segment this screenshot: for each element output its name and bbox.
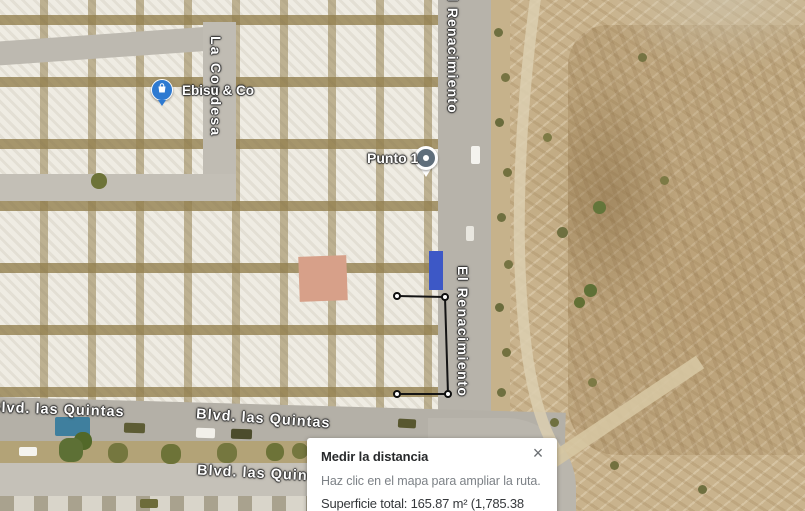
measure-line[interactable] [397, 295, 445, 298]
measure-vertex[interactable] [393, 292, 401, 300]
measure-line[interactable] [397, 393, 448, 395]
measure-vertex[interactable] [441, 293, 449, 301]
measure-distance-panel: × Medir la distancia Haz clic en el mapa… [307, 438, 557, 511]
measure-vertex[interactable] [444, 390, 452, 398]
measure-line[interactable] [444, 297, 449, 394]
google-maps-satellite-view: El Renacimiento El Renacimiento La Conde… [0, 0, 805, 511]
panel-title: Medir la distancia [321, 448, 543, 465]
measurement-layer [0, 0, 805, 511]
close-icon[interactable]: × [528, 443, 548, 463]
panel-subtitle: Haz clic en el mapa para ampliar la ruta… [321, 473, 543, 490]
measure-vertex[interactable] [393, 390, 401, 398]
panel-total-area: Superficie total: 165.87 m² (1,785.38 pi… [321, 495, 543, 511]
